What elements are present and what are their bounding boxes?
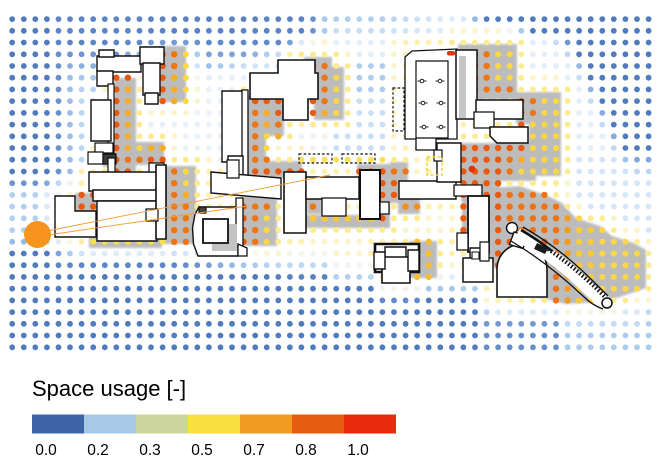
svg-text:0.7: 0.7 bbox=[243, 442, 265, 459]
svg-text:0.2: 0.2 bbox=[87, 442, 109, 459]
svg-text:1.0: 1.0 bbox=[347, 442, 369, 459]
svg-text:0.5: 0.5 bbox=[191, 442, 213, 459]
svg-text:0.0: 0.0 bbox=[35, 442, 57, 459]
svg-text:Space usage [-]: Space usage [-] bbox=[32, 376, 186, 401]
svg-text:0.8: 0.8 bbox=[295, 442, 317, 459]
svg-text:0.3: 0.3 bbox=[139, 442, 161, 459]
